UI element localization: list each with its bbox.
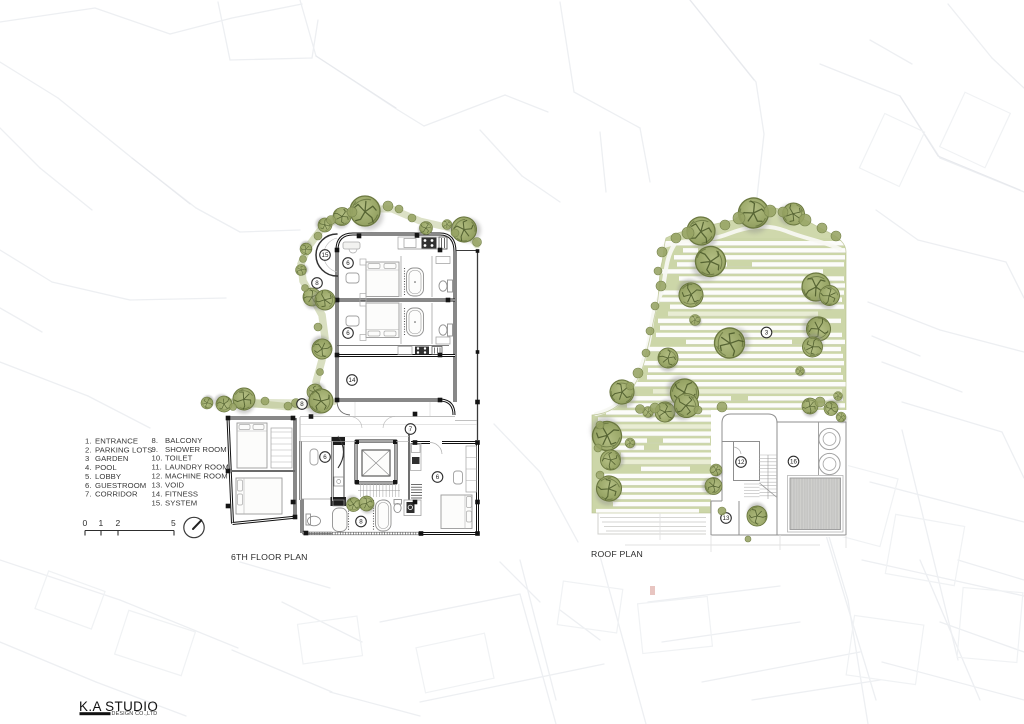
svg-text:CORRIDOR: CORRIDOR [95,490,138,499]
svg-text:POOL: POOL [95,463,117,472]
svg-text:6: 6 [436,474,440,481]
svg-text:16: 16 [790,459,797,466]
svg-text:13.: 13. [152,481,163,490]
svg-text:MACHINE ROOM: MACHINE ROOM [165,472,228,481]
svg-text:6: 6 [346,330,350,337]
svg-text:6: 6 [346,260,350,267]
svg-text:DESIGN CO.,LTD: DESIGN CO.,LTD [112,711,158,717]
svg-text:ENTRANCE: ENTRANCE [95,437,138,446]
svg-text:7: 7 [409,426,413,433]
svg-text:13: 13 [723,515,730,522]
svg-text:2.: 2. [85,445,92,454]
svg-text:12.: 12. [152,472,163,481]
svg-text:2: 2 [116,518,121,528]
svg-text:14.: 14. [152,490,163,499]
svg-text:SHOWER ROOM: SHOWER ROOM [165,445,227,454]
svg-text:10.: 10. [152,454,163,463]
svg-text:3: 3 [765,330,769,337]
svg-text:14: 14 [349,377,356,384]
svg-text:ROOF PLAN: ROOF PLAN [591,549,643,559]
svg-text:1: 1 [99,518,104,528]
svg-text:VOID: VOID [165,481,185,490]
svg-text:6: 6 [323,454,327,461]
svg-text:6TH FLOOR PLAN: 6TH FLOOR PLAN [231,552,308,562]
svg-text:9.: 9. [152,445,159,454]
svg-text:LOBBY: LOBBY [95,472,121,481]
svg-text:0: 0 [83,518,88,528]
svg-text:LAUNDRY ROOM: LAUNDRY ROOM [165,463,229,472]
svg-text:BALCONY: BALCONY [165,436,202,445]
svg-text:4.: 4. [85,463,92,472]
svg-text:8: 8 [315,280,319,287]
svg-text:15: 15 [322,252,329,259]
svg-text:GARDEN: GARDEN [95,454,129,463]
svg-text:7.: 7. [85,490,92,499]
svg-text:8: 8 [300,401,304,408]
svg-text:8: 8 [359,519,363,526]
svg-text:15.: 15. [152,498,163,507]
svg-text:12: 12 [738,459,745,466]
svg-text:5.: 5. [85,472,92,481]
svg-text:PARKING LOTS: PARKING LOTS [95,445,152,454]
svg-text:1.: 1. [85,437,92,446]
svg-text:GUESTROOM: GUESTROOM [95,481,146,490]
svg-text:6.: 6. [85,481,92,490]
svg-text:5: 5 [171,518,176,528]
svg-text:SYSTEM: SYSTEM [165,498,197,507]
svg-text:TOILET: TOILET [165,454,193,463]
svg-text:11.: 11. [152,463,162,472]
svg-text:3: 3 [85,454,89,463]
svg-text:8.: 8. [152,436,159,445]
svg-text:FITNESS: FITNESS [165,490,198,499]
